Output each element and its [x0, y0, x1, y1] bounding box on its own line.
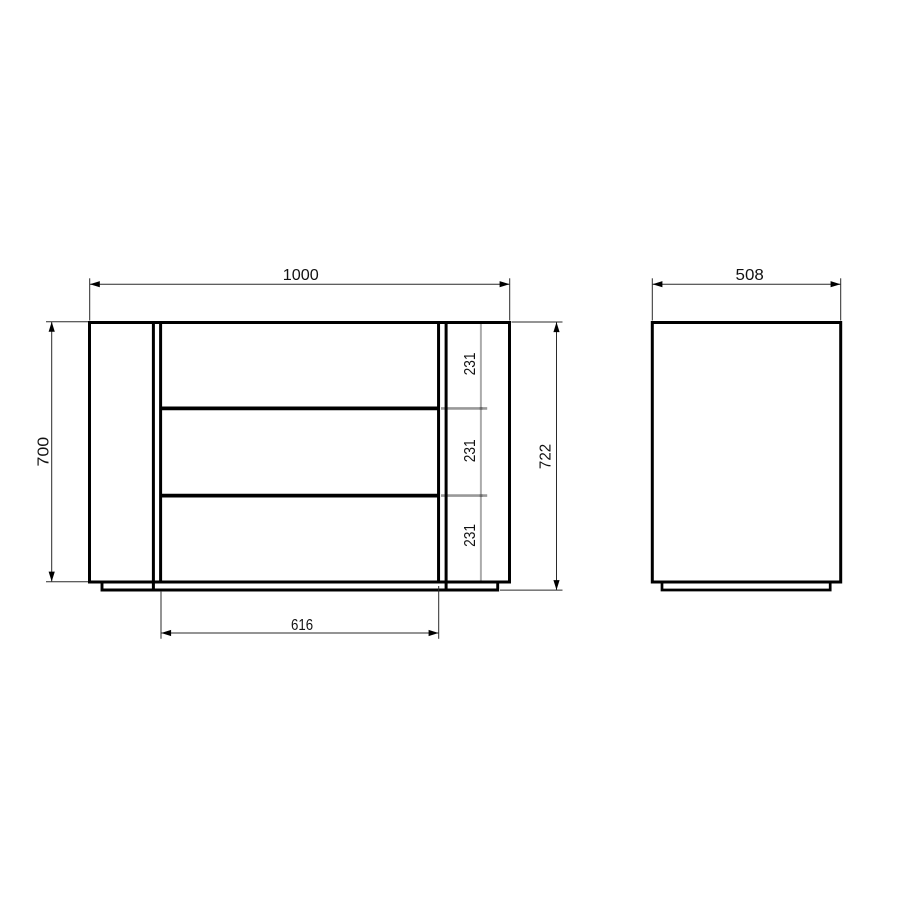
svg-text:231: 231: [462, 439, 479, 462]
svg-text:700: 700: [36, 437, 53, 467]
svg-text:1000: 1000: [283, 267, 319, 284]
svg-text:616: 616: [291, 617, 313, 634]
svg-text:231: 231: [462, 352, 479, 375]
svg-text:722: 722: [538, 444, 555, 469]
svg-text:231: 231: [462, 524, 479, 547]
svg-text:508: 508: [736, 267, 764, 284]
